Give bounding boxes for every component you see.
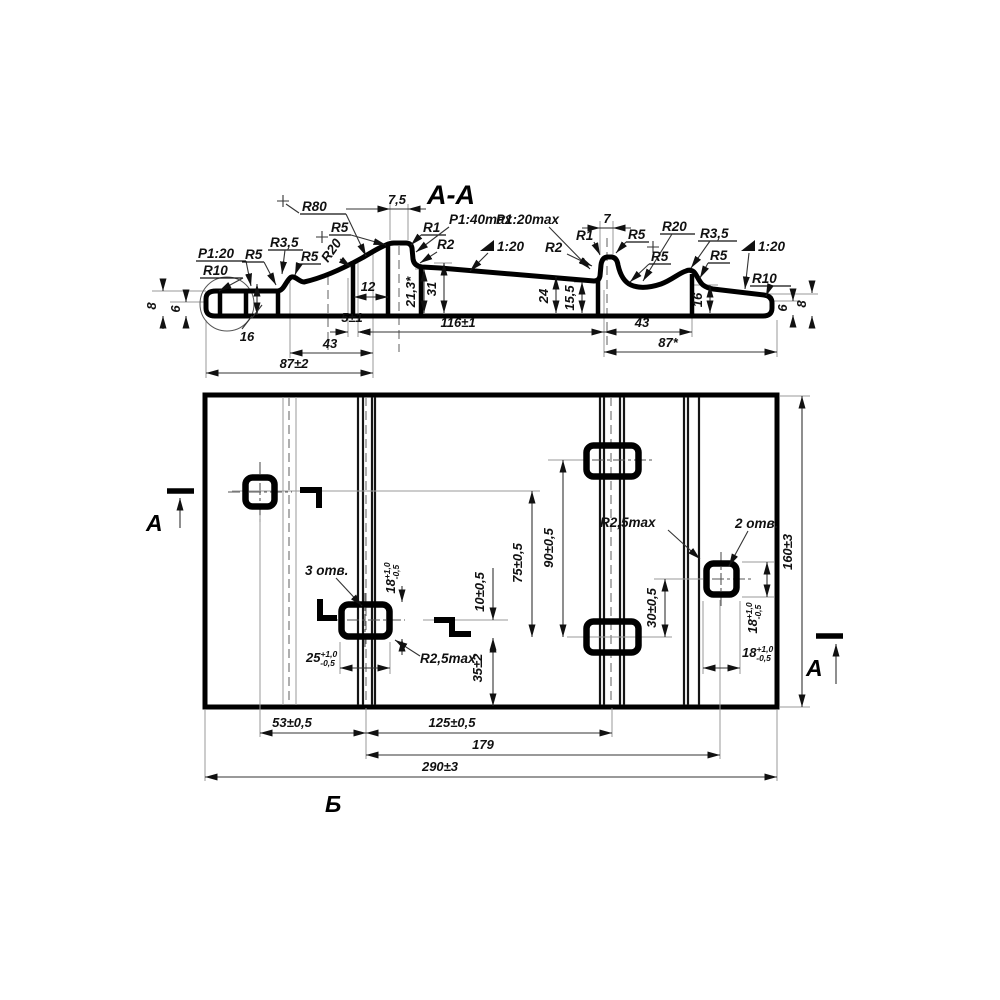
dim-30: 30±0,5 [644, 587, 659, 627]
dim-87-right: 87* [658, 335, 678, 350]
dim-87-left: 87±2 [280, 356, 310, 371]
dim-6-left: 6 [168, 305, 183, 313]
leader-line [420, 252, 437, 263]
section-view: 8 6 16 12 7,5 7 21,3* 31 24 15,5 16 6 8 … [144, 180, 818, 378]
label-r2-left: R2 [437, 237, 455, 252]
dim-160: 160±3 [780, 533, 795, 570]
leader-line [282, 250, 285, 274]
dim-43-left: 43 [322, 336, 338, 351]
dim-290: 290±3 [421, 759, 459, 774]
stamp-mark [437, 620, 468, 634]
dim-21-3: 21,3* [403, 276, 418, 308]
leader-line [264, 262, 276, 285]
label-slope-right: 1:20 [758, 239, 786, 254]
engineering-drawing: 8 6 16 12 7,5 7 21,3* 31 24 15,5 16 6 8 … [0, 0, 1000, 1000]
label-taper-mid: Р1:20max [496, 212, 560, 227]
dim-90: 90±0,5 [541, 527, 556, 567]
view-letter: Б [325, 791, 341, 817]
section-profile [206, 243, 772, 316]
dim-12: 12 [361, 279, 376, 294]
dim-18-right-v: 18+1,0-0,5 [744, 602, 763, 634]
label-slope-mid: 1:20 [497, 239, 525, 254]
slope-icon [480, 240, 494, 251]
dim-7: 7 [603, 211, 611, 226]
label-r10-left: R10 [203, 263, 228, 278]
label-r5-bump-left: R5 [301, 249, 319, 264]
label-r5-hump-right: R5 [628, 227, 646, 242]
label-r10-right: R10 [752, 271, 777, 286]
dim-24: 24 [536, 288, 551, 304]
stamp-mark [320, 602, 334, 618]
center-cross [316, 231, 328, 243]
leader-line [411, 235, 421, 245]
label-r5-dip-right: R5 [651, 249, 669, 264]
leader-line [594, 242, 600, 255]
dim-18-mid: 18+1,0-0,5 [382, 562, 401, 594]
dim-179: 179 [472, 737, 494, 752]
dim-16-left: 16 [240, 329, 255, 344]
note-three-holes: 3 отв. [305, 563, 348, 578]
dim-53: 53±0,5 [272, 715, 312, 730]
dim-15-5: 15,5 [562, 285, 577, 311]
section-title: А-А [426, 180, 475, 210]
dim-75: 75±0,5 [510, 542, 525, 582]
dim-8-right: 8 [794, 300, 809, 308]
label-r1-left: R1 [423, 220, 440, 235]
dim-10: 10±0,5 [472, 571, 487, 611]
plan-view: 90±0,5 75±0,5 30±0,5 10±0,5 35±2 18+1,0-… [145, 395, 843, 817]
dim-116: 116±1 [440, 315, 475, 330]
label-r20-right: R20 [662, 219, 687, 234]
label-r3-5-right: R3,5 [700, 226, 729, 241]
label-r5-shoulder: R5 [331, 220, 349, 235]
leader-line [470, 253, 488, 271]
label-r1-right: R1 [576, 228, 593, 243]
leader-line [567, 254, 592, 266]
note-r25max-mid: R2,5max [420, 651, 476, 666]
leader-line [246, 261, 251, 286]
dim-25: 25+1,0-0,5 [305, 649, 338, 668]
label-r80: R80 [302, 199, 327, 214]
leader-line [395, 640, 420, 656]
dim-5-1: 5±1 [341, 310, 363, 325]
dim-43-right: 43 [634, 315, 650, 330]
dim-18-right-h: 18+1,0-0,5 [742, 644, 774, 663]
label-r2-right: R2 [545, 240, 563, 255]
dim-8-left: 8 [144, 302, 159, 310]
dim-6-right: 6 [775, 304, 790, 312]
note-r25max-right: R2,5max [600, 515, 656, 530]
square-hole [587, 446, 639, 477]
leader-line [616, 242, 626, 253]
label-r3-5-left: R3,5 [270, 235, 299, 250]
dim-16-right: 16 [690, 292, 705, 307]
dim-31: 31 [424, 282, 439, 296]
label-r5-bump-right: R5 [710, 248, 728, 263]
slope-icon [741, 240, 755, 251]
leader-line [286, 204, 299, 213]
cut-letter-right: А [805, 655, 823, 681]
cut-letter-left: А [145, 510, 163, 536]
stamp-mark [303, 490, 319, 505]
dim-7-5: 7,5 [388, 192, 407, 207]
label-taper-left: Р1:20 [198, 246, 235, 261]
leader-line [630, 264, 649, 282]
leader-line [295, 264, 299, 275]
note-two-holes: 2 отв. [734, 516, 778, 531]
dim-125: 125±0,5 [429, 715, 477, 730]
leader-line [729, 531, 748, 566]
leader-line [351, 235, 386, 245]
leader-line [745, 253, 749, 289]
leader-line [700, 263, 708, 278]
label-r5-left: R5 [245, 247, 263, 262]
